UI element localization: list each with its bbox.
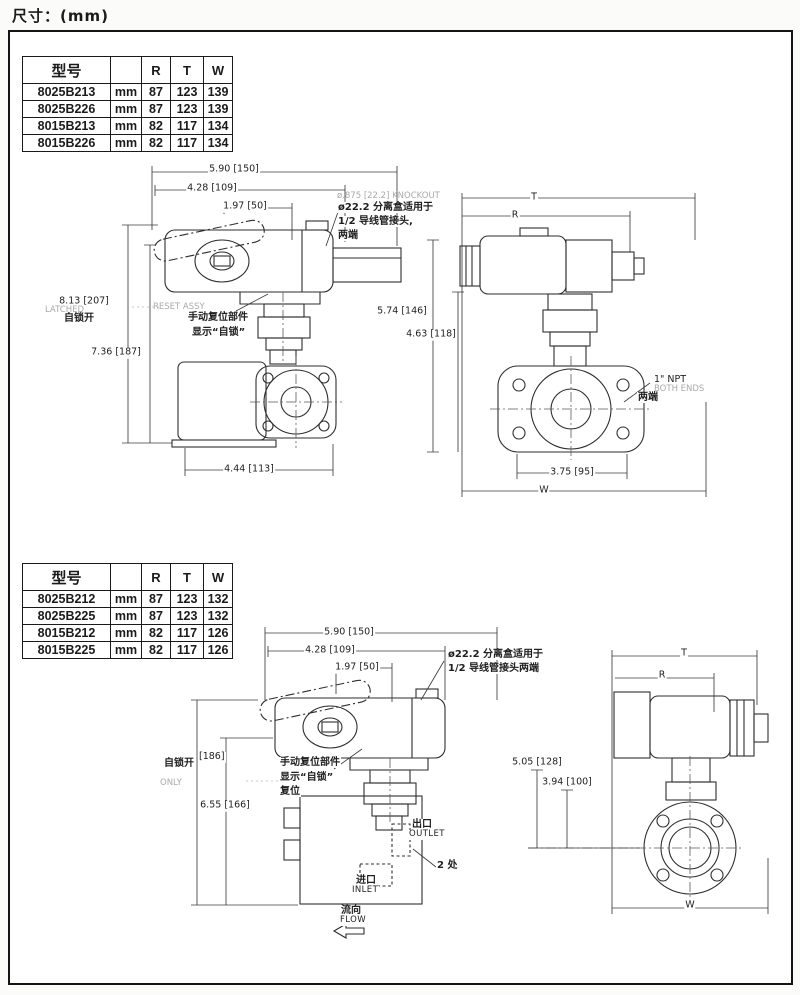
cell-unit: mm: [111, 608, 142, 625]
cell-model: 8015B213: [23, 118, 111, 135]
col-header-t: T: [171, 564, 204, 591]
solenoid-enclosure: [480, 236, 566, 294]
note-knockout-cn-2: 1/2 导线管接头,: [337, 216, 414, 227]
cell-model: 8015B225: [23, 642, 111, 659]
cell-model: 8025B213: [23, 84, 111, 101]
col-header-r: R: [142, 564, 171, 591]
label-flow-en: FLOW: [339, 916, 367, 926]
cell-t: 123: [171, 608, 204, 625]
cell-model: 8015B212: [23, 625, 111, 642]
dim-label-505: 5.05 [128]: [511, 758, 563, 769]
col-header-w: W: [204, 564, 233, 591]
dim-label-428-top: 4.28 [109]: [186, 184, 238, 195]
cell-r: 87: [142, 608, 171, 625]
cell-r: 82: [142, 625, 171, 642]
outlet-port: [392, 824, 410, 856]
table-row: 8015B225 mm 82 117 126: [23, 642, 233, 659]
dim-label-375: 3.75 [95]: [549, 468, 595, 479]
dimension-table-top: 型号 R T W 8025B213 mm 87 123 139 8025B226…: [22, 56, 233, 152]
cell-t: 117: [171, 135, 204, 152]
cell-r: 82: [142, 135, 171, 152]
dimension-table-bottom: 型号 R T W 8025B212 mm 87 123 132 8025B225…: [22, 563, 233, 659]
dim-label-186: [186]: [198, 752, 226, 763]
dim-label-736: 7.36 [187]: [90, 348, 142, 359]
cell-r: 82: [142, 642, 171, 659]
cell-unit: mm: [111, 118, 142, 135]
dim-label-574: 5.74 [146]: [376, 307, 428, 318]
cell-w: 134: [204, 118, 233, 135]
solenoid-enclosure: [650, 696, 730, 758]
note-only-en: ONLY: [159, 779, 183, 789]
drawing-bottom-right-linework: [614, 692, 768, 894]
flow-direction-arrow: [334, 924, 364, 938]
dim-label-r-top: R: [511, 211, 520, 222]
drawing-top-right-linework: [460, 228, 644, 452]
cell-w: 134: [204, 135, 233, 152]
col-header-r: R: [142, 57, 171, 84]
table-row: 8025B213 mm 87 123 139: [23, 84, 233, 101]
note-reset-cn-2: 显示“自锁”: [191, 327, 246, 338]
table-header-row: 型号 R T W: [23, 564, 233, 591]
cell-model: 8015B226: [23, 135, 111, 152]
centerlines-top-right: [490, 356, 652, 460]
cell-r: 87: [142, 101, 171, 118]
table-row: 8025B212 mm 87 123 132: [23, 591, 233, 608]
dim-label-394: 3.94 [100]: [541, 778, 593, 789]
note-latched-cn: 自锁开: [63, 313, 95, 324]
cell-r: 87: [142, 591, 171, 608]
label-outlet-en: OUTLET: [408, 830, 446, 840]
cell-w: 139: [204, 101, 233, 118]
cell-model: 8025B226: [23, 101, 111, 118]
table-row: 8015B213 mm 82 117 134: [23, 118, 233, 135]
dim-label-197-bottom: 1.97 [50]: [334, 663, 380, 674]
table-row: 8015B226 mm 82 117 134: [23, 135, 233, 152]
cell-unit: mm: [111, 642, 142, 659]
note-ports: 2 处: [436, 860, 458, 871]
cell-w: 139: [204, 84, 233, 101]
note-knockout-en: ø.875 [22.2] KNOCKOUT: [336, 192, 441, 202]
valve-body: [178, 362, 266, 440]
drawing-top-left-linework: [152, 218, 401, 447]
drawing-bottom-left-linework: [258, 678, 445, 938]
note-latched-cn-bottom: 自锁开: [163, 758, 195, 769]
manual-reset-lever: [152, 218, 266, 263]
dimension-lines-top-right: [427, 193, 706, 497]
dim-label-t-top: T: [530, 193, 538, 204]
dim-label-t-bottom: T: [680, 649, 688, 660]
label-inlet-en: INLET: [351, 886, 379, 896]
cell-w: 126: [204, 625, 233, 642]
col-header-model: 型号: [23, 564, 111, 591]
cell-unit: mm: [111, 84, 142, 101]
col-header-w: W: [204, 57, 233, 84]
dim-label-444: 4.44 [113]: [223, 465, 275, 476]
cell-w: 132: [204, 608, 233, 625]
cell-model: 8025B212: [23, 591, 111, 608]
dim-label-463: 4.63 [118]: [405, 330, 457, 341]
cell-t: 123: [171, 84, 204, 101]
col-header-unit: [111, 57, 142, 84]
cell-w: 132: [204, 591, 233, 608]
dim-label-r-bottom: R: [658, 671, 667, 682]
dim-label-655: 6.55 [166]: [199, 801, 251, 812]
cell-w: 126: [204, 642, 233, 659]
dim-label-197-top: 1.97 [50]: [222, 202, 268, 213]
cell-unit: mm: [111, 625, 142, 642]
table-row: 8025B225 mm 87 123 132: [23, 608, 233, 625]
note-knockout-cn-1-bottom: ø22.2 分离盒适用于: [447, 649, 544, 660]
cell-model: 8025B225: [23, 608, 111, 625]
col-header-unit: [111, 564, 142, 591]
cell-r: 87: [142, 84, 171, 101]
cell-unit: mm: [111, 101, 142, 118]
col-header-model: 型号: [23, 57, 111, 84]
note-reset-cn-2-bottom: 显示“自锁”: [279, 772, 334, 783]
table-row: 8025B226 mm 87 123 139: [23, 101, 233, 118]
dim-label-428-bottom: 4.28 [109]: [304, 646, 356, 657]
dim-label-590-bottom: 5.90 [150]: [323, 628, 375, 639]
note-npt-cn: 两端: [637, 392, 659, 403]
table-header-row: 型号 R T W: [23, 57, 233, 84]
note-knockout-cn-1: ø22.2 分离盒适用于: [337, 202, 434, 213]
cell-t: 123: [171, 591, 204, 608]
solenoid-enclosure: [275, 698, 445, 758]
note-knockout-cn-3: 两端: [337, 230, 359, 241]
cell-t: 117: [171, 118, 204, 135]
cell-t: 117: [171, 625, 204, 642]
dim-label-w-top: W: [538, 486, 549, 497]
note-npt-en-2: BOTH ENDS: [653, 385, 705, 395]
cell-unit: mm: [111, 591, 142, 608]
dim-label-w-bottom: W: [684, 901, 695, 912]
note-reset-cn-1: 手动复位部件: [187, 312, 249, 323]
cell-t: 117: [171, 642, 204, 659]
leader-lines-top-left: [236, 212, 338, 311]
note-reset-cn-3-bottom: 复位: [279, 786, 301, 797]
conduit-box: [333, 248, 401, 282]
col-header-t: T: [171, 57, 204, 84]
note-reset-cn-1-bottom: 手动复位部件: [279, 757, 341, 768]
cell-unit: mm: [111, 135, 142, 152]
note-knockout-cn-2-bottom: 1/2 导线管接头两端: [447, 663, 540, 674]
cell-t: 123: [171, 101, 204, 118]
dim-label-590-top: 5.90 [150]: [208, 165, 260, 176]
cell-r: 82: [142, 118, 171, 135]
table-row: 8015B212 mm 82 117 126: [23, 625, 233, 642]
